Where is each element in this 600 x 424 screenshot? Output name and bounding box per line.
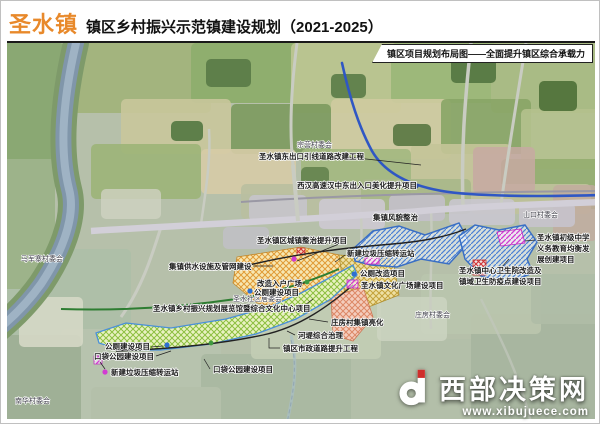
village-label: 宗营村委会 bbox=[297, 140, 332, 149]
dot-blue bbox=[164, 342, 169, 347]
project-label: 展创建项目 bbox=[536, 254, 575, 264]
dot-green bbox=[209, 341, 214, 346]
dot-blue bbox=[247, 288, 252, 293]
page-title: 镇区乡村振兴示范镇建设规划（2021-2025） bbox=[86, 16, 383, 37]
map-subtitle-ribbon: 镇区项目规划布局图——全面提升镇区综合承载力 bbox=[372, 44, 593, 63]
project-label: 西汉高速汉中东出入口美化提升项目 bbox=[297, 180, 417, 190]
project-label: 改造入户广场 bbox=[257, 278, 302, 288]
project-label: 圣水镇东出口引线道路改建工程 bbox=[258, 151, 364, 161]
dot-magenta bbox=[291, 256, 296, 261]
project-label: 公厕建设项目 bbox=[254, 287, 299, 297]
project-label: 圣水镇中心卫生院改造及 bbox=[458, 265, 542, 275]
village-label: 南华村委会 bbox=[15, 396, 50, 405]
project-label: 圣水镇文化广场建设项目 bbox=[360, 280, 444, 290]
project-label: 河堤综合治理 bbox=[298, 330, 343, 340]
project-label: 口袋公园建设项目 bbox=[213, 364, 273, 374]
project-label: 新建垃圾压缩转运站 bbox=[347, 248, 415, 258]
dot-green bbox=[305, 280, 310, 285]
village-label: 庄房村委会 bbox=[415, 310, 450, 319]
watermark-name: 西部决策网 bbox=[439, 368, 589, 407]
project-label: 新建垃圾压缩转运站 bbox=[111, 367, 179, 377]
map-area: 宗营村委会 山口村委会 马军寨村委会 圣水社区居委会 庄房村委会 南华村委会 圣… bbox=[7, 43, 595, 419]
watermark: 西部决策网 www.xibujuece.com bbox=[394, 367, 589, 418]
project-label: 义务教育均衡发 bbox=[536, 243, 590, 253]
village-label: 马军寨村委会 bbox=[21, 254, 63, 263]
map-svg: 宗营村委会 山口村委会 马军寨村委会 圣水社区居委会 庄房村委会 南华村委会 圣… bbox=[7, 43, 595, 419]
project-label: 公厕改造项目 bbox=[360, 268, 405, 278]
planning-map-page: 圣水镇 镇区乡村振兴示范镇建设规划（2021-2025） 镇区项目规划布局图——… bbox=[0, 0, 600, 424]
zone-school-magenta bbox=[497, 229, 525, 246]
project-label: 集镇供水设施及管网建设 bbox=[168, 261, 252, 271]
project-label: 集镇风貌整治 bbox=[372, 212, 418, 222]
project-label: 口袋公园建设项目 bbox=[94, 351, 154, 361]
watermark-logo-icon bbox=[394, 367, 434, 407]
dot-blue bbox=[351, 271, 356, 276]
project-label: 镇区市政道路提升工程 bbox=[283, 343, 358, 353]
legend-magenta-square bbox=[347, 280, 358, 288]
dot-magenta bbox=[102, 369, 107, 374]
village-label: 山口村委会 bbox=[523, 210, 558, 219]
project-label: 庄房村集镇亮化 bbox=[331, 317, 384, 327]
header: 圣水镇 镇区乡村振兴示范镇建设规划（2021-2025） bbox=[9, 7, 593, 39]
project-label: 圣水镇乡村振兴规划展览馆暨综合文化中心项目 bbox=[152, 303, 311, 313]
town-name: 圣水镇 bbox=[9, 7, 78, 39]
project-label: 圣水镇区城镇整治提升项目 bbox=[256, 235, 347, 245]
project-label: 圣水镇初级中学 bbox=[536, 232, 590, 242]
project-label: 镇域卫生防疫点建设项目 bbox=[459, 276, 542, 286]
project-label: 公厕建设项目 bbox=[105, 341, 150, 351]
watermark-url: www.xibujuece.com bbox=[463, 406, 590, 418]
